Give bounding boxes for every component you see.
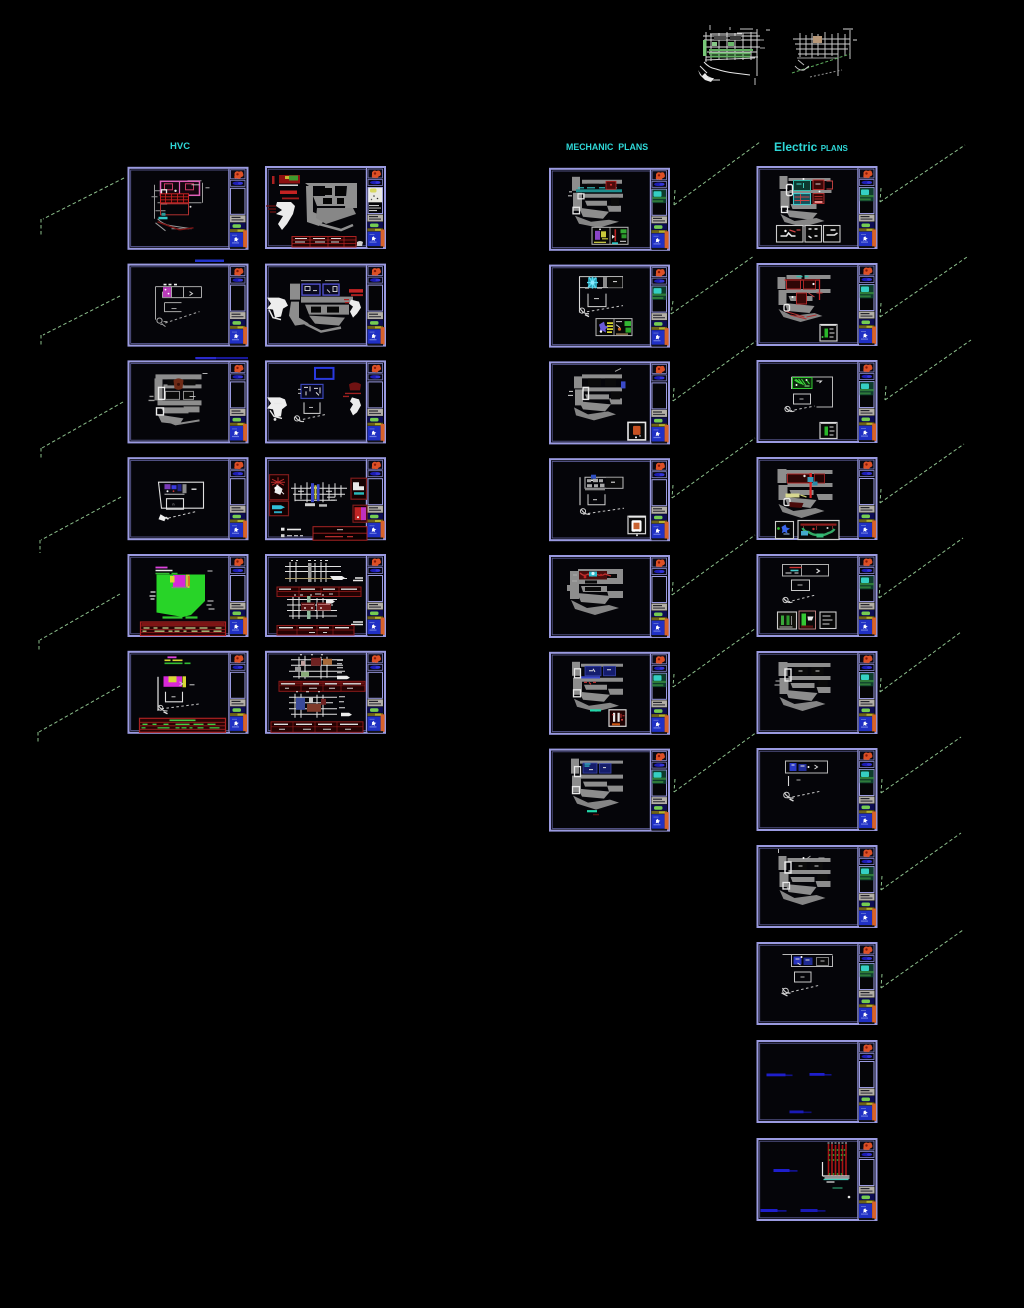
- svg-text:MECHANIC PLANS: MECHANIC PLANS: [566, 142, 648, 152]
- svg-text:HVC: HVC: [170, 141, 190, 152]
- svg-text:n: n: [173, 503, 175, 507]
